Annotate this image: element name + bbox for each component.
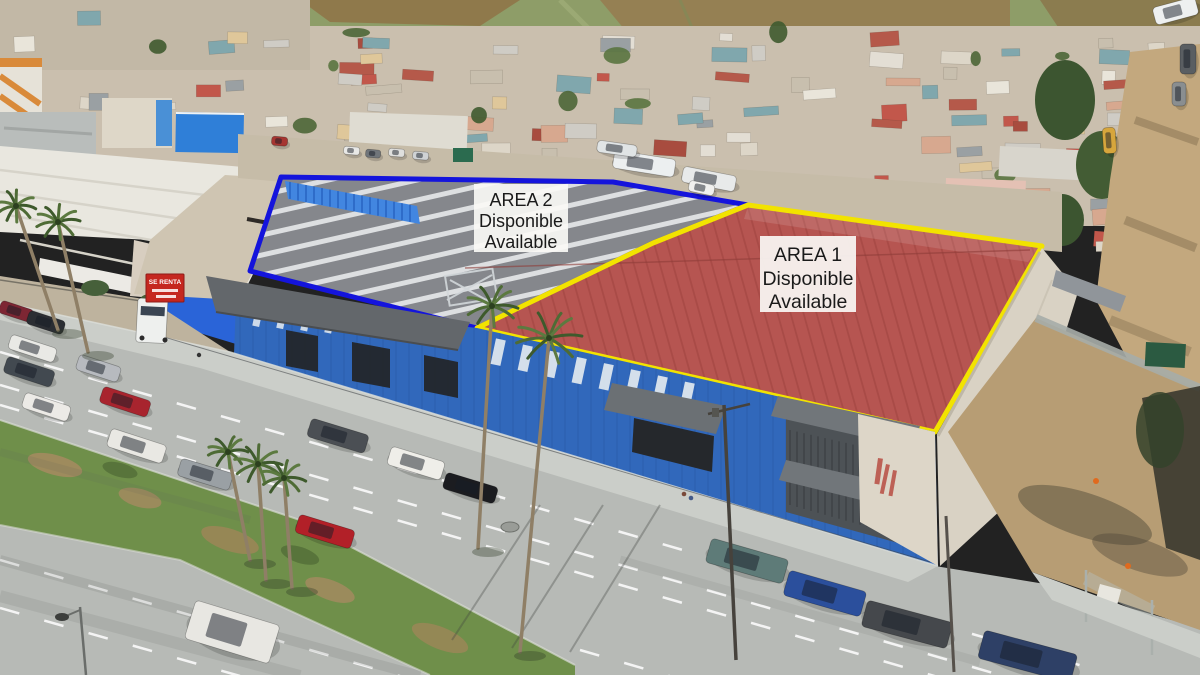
house — [870, 31, 899, 47]
house — [556, 75, 591, 94]
traffic-cone — [1125, 563, 1131, 569]
tree — [293, 118, 317, 134]
house — [712, 47, 747, 62]
house — [14, 36, 35, 52]
area1-subtitle-es: Disponible — [762, 268, 853, 290]
vehicle — [1172, 82, 1189, 110]
house — [367, 103, 387, 112]
house — [949, 99, 977, 110]
house — [678, 113, 704, 125]
tree — [558, 91, 577, 111]
dumpster — [453, 148, 473, 162]
house — [470, 70, 503, 84]
house — [952, 115, 987, 126]
house — [565, 123, 597, 139]
house — [720, 33, 733, 41]
house — [360, 54, 382, 65]
house — [727, 133, 751, 143]
house — [1099, 49, 1130, 65]
se-renta-sign: SE RENTA — [146, 274, 184, 302]
loading-door — [352, 342, 390, 388]
loading-door — [286, 330, 318, 372]
house — [941, 51, 972, 65]
area2-subtitle-en: Available — [485, 232, 558, 252]
house — [614, 108, 643, 124]
house — [653, 140, 686, 157]
dumpster — [1145, 342, 1186, 368]
house — [803, 88, 836, 100]
area2-label: AREA 2 Disponible Available — [474, 184, 568, 252]
house — [944, 67, 958, 79]
loading-door — [424, 355, 458, 398]
house — [362, 37, 389, 49]
house — [493, 46, 518, 55]
house — [869, 51, 903, 68]
house — [337, 124, 351, 139]
tree — [342, 28, 370, 37]
tree — [625, 98, 651, 109]
house — [752, 45, 766, 61]
house — [986, 81, 1009, 95]
house — [872, 119, 903, 129]
house — [1013, 121, 1027, 131]
area2-subtitle-es: Disponible — [479, 211, 563, 231]
aerial-photo-stage: SE RENTA AREA 2 Disponible Available ARE… — [0, 0, 1200, 675]
house — [1098, 38, 1113, 48]
vehicle — [1180, 44, 1199, 79]
house — [541, 125, 568, 142]
house — [226, 80, 244, 91]
house — [1002, 49, 1020, 57]
house — [227, 32, 247, 44]
house — [700, 145, 715, 157]
sign-text: SE RENTA — [149, 279, 182, 286]
house — [740, 142, 758, 155]
house — [338, 73, 362, 86]
house — [620, 89, 649, 100]
traffic-cone — [1093, 478, 1099, 484]
house — [957, 146, 983, 157]
tree — [149, 39, 167, 53]
area1-subtitle-en: Available — [769, 291, 848, 313]
blue-roof-building — [175, 112, 244, 153]
manhole — [501, 522, 519, 532]
house — [402, 69, 434, 81]
house — [77, 11, 100, 26]
area2-title: AREA 2 — [489, 190, 552, 210]
house — [922, 85, 938, 99]
house — [264, 40, 289, 48]
house — [886, 78, 920, 86]
house — [921, 136, 950, 154]
house — [196, 85, 220, 97]
area1-title: AREA 1 — [774, 244, 842, 266]
tree — [328, 60, 338, 71]
tree — [971, 51, 981, 66]
house — [597, 73, 609, 81]
tree — [471, 107, 487, 123]
area1-label: AREA 1 Disponible Available — [760, 236, 856, 313]
house — [265, 116, 287, 127]
aerial-photo: SE RENTA AREA 2 Disponible Available ARE… — [0, 0, 1200, 675]
house — [492, 97, 507, 109]
tree — [1055, 52, 1069, 60]
house — [692, 97, 710, 111]
tree — [604, 47, 631, 64]
tree — [769, 21, 787, 43]
